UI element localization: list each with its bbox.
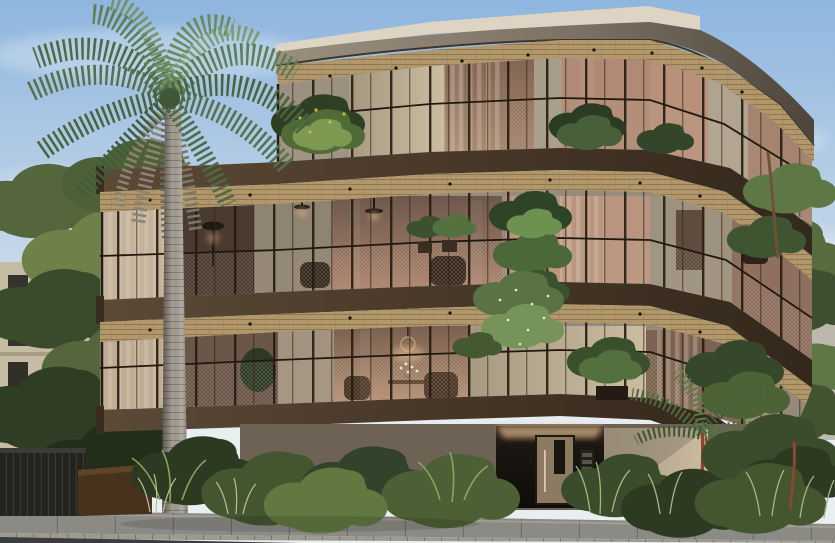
hedge-shadow xyxy=(120,516,480,532)
band-end-cap xyxy=(96,296,104,324)
plant-pot xyxy=(596,386,628,400)
door-handle xyxy=(544,450,546,492)
render-canvas xyxy=(0,0,835,543)
band-end-cap xyxy=(96,406,104,434)
palm-crown-core xyxy=(160,88,180,108)
door-sign xyxy=(554,440,565,474)
left-fence xyxy=(0,448,86,516)
architectural-render xyxy=(0,0,835,543)
